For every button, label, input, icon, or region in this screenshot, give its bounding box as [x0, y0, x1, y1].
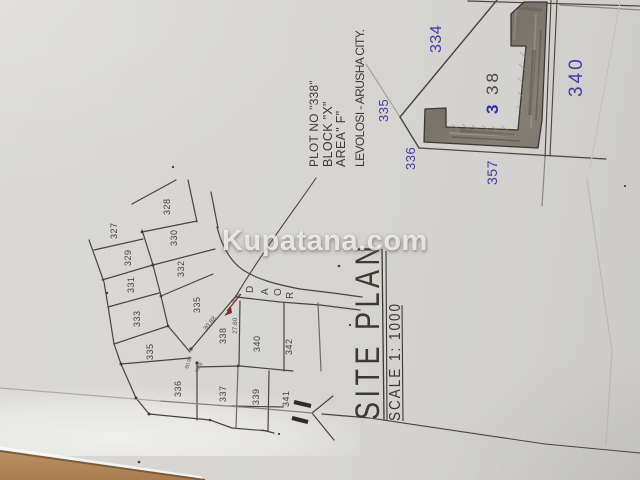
svg-text:A: A [260, 288, 271, 295]
svg-text:332: 332 [176, 260, 186, 277]
svg-text:328: 328 [162, 198, 172, 215]
svg-text:333: 333 [132, 310, 142, 327]
svg-text:SITE PLAN: SITE PLAN [348, 242, 387, 420]
svg-text:D: D [245, 286, 256, 293]
svg-text:O: O [273, 288, 284, 296]
svg-text:330: 330 [169, 229, 179, 246]
svg-text:336: 336 [403, 147, 418, 170]
svg-text:30.88: 30.88 [202, 315, 218, 332]
svg-text:PLOT NO "338": PLOT NO "338" [307, 80, 321, 167]
svg-text:329: 329 [123, 249, 133, 266]
svg-text:340: 340 [566, 56, 587, 97]
svg-text:334: 334 [428, 25, 445, 53]
svg-text:R: R [285, 292, 296, 299]
svg-text:331: 331 [126, 276, 136, 293]
svg-text:335: 335 [145, 343, 155, 360]
svg-text:340: 340 [252, 335, 262, 352]
svg-text:60.96: 60.96 [184, 356, 194, 370]
svg-text:341: 341 [281, 390, 291, 407]
svg-text:38: 38 [483, 70, 502, 95]
svg-text:27.60: 27.60 [232, 317, 239, 334]
svg-text:LEVOLOSI - ARUSHA CITY.: LEVOLOSI - ARUSHA CITY. [353, 29, 367, 167]
svg-text:357: 357 [484, 160, 500, 185]
svg-text:336: 336 [173, 380, 183, 397]
svg-text:335: 335 [376, 99, 391, 122]
svg-text:335: 335 [192, 296, 202, 313]
svg-text:342: 342 [284, 338, 294, 355]
svg-text:BLOCK "X": BLOCK "X" [321, 101, 335, 167]
svg-text:339: 339 [251, 388, 261, 405]
svg-text:3: 3 [483, 104, 502, 114]
svg-text:338: 338 [218, 327, 228, 344]
svg-text:327: 327 [109, 222, 119, 239]
svg-text:337: 337 [218, 385, 228, 402]
svg-text:AREA" F": AREA" F" [334, 111, 348, 167]
